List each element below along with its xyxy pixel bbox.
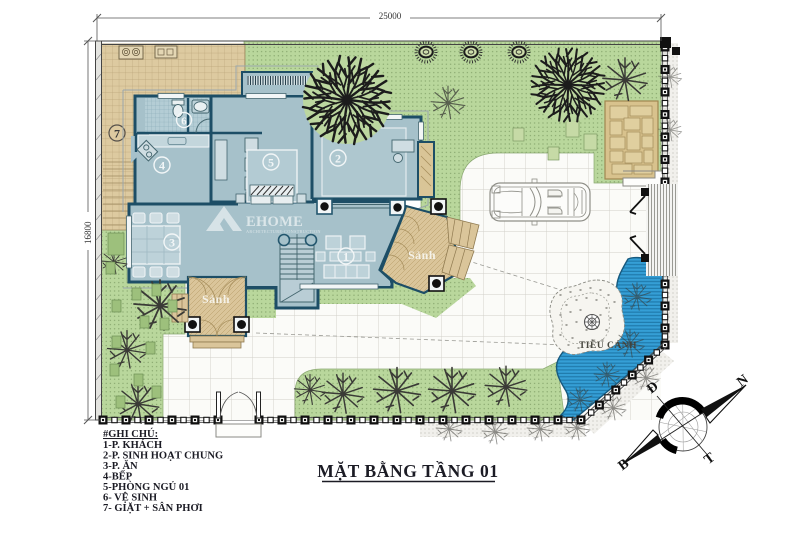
svg-text:2-P. SINH HOẠT CHUNG: 2-P. SINH HOẠT CHUNG [103,451,223,462]
svg-text:5: 5 [268,156,274,170]
svg-text:1: 1 [343,250,349,264]
svg-text:1-P. KHÁCH: 1-P. KHÁCH [103,439,162,451]
svg-text:16800: 16800 [83,221,93,244]
svg-text:Sảnh: Sảnh [202,292,230,306]
svg-text:5-PHÒNG NGỦ 01: 5-PHÒNG NGỦ 01 [103,481,189,493]
svg-text:6- VỆ SINH: 6- VỆ SINH [103,491,157,504]
svg-text:4: 4 [159,159,165,173]
svg-text:3: 3 [169,236,175,250]
svg-text:MẶT BẰNG TẦNG 01: MẶT BẰNG TẦNG 01 [317,461,499,481]
svg-text:3-P. ĂN: 3-P. ĂN [103,460,138,472]
svg-text:2: 2 [335,152,341,166]
svg-text:25000: 25000 [379,11,402,21]
svg-text:6: 6 [181,116,187,128]
svg-text:7- GIẶT + SÂN PHƠI: 7- GIẶT + SÂN PHƠI [103,501,203,514]
svg-text:Sảnh: Sảnh [408,248,436,262]
svg-text:ARCHITECTURE-CONSTRUCTION: ARCHITECTURE-CONSTRUCTION [246,229,321,234]
svg-text:7: 7 [114,127,120,141]
svg-text:#GHI CHÚ:: #GHI CHÚ: [103,428,158,440]
svg-text:4-BẾP: 4-BẾP [103,470,133,483]
svg-text:EHOME: EHOME [246,214,303,230]
